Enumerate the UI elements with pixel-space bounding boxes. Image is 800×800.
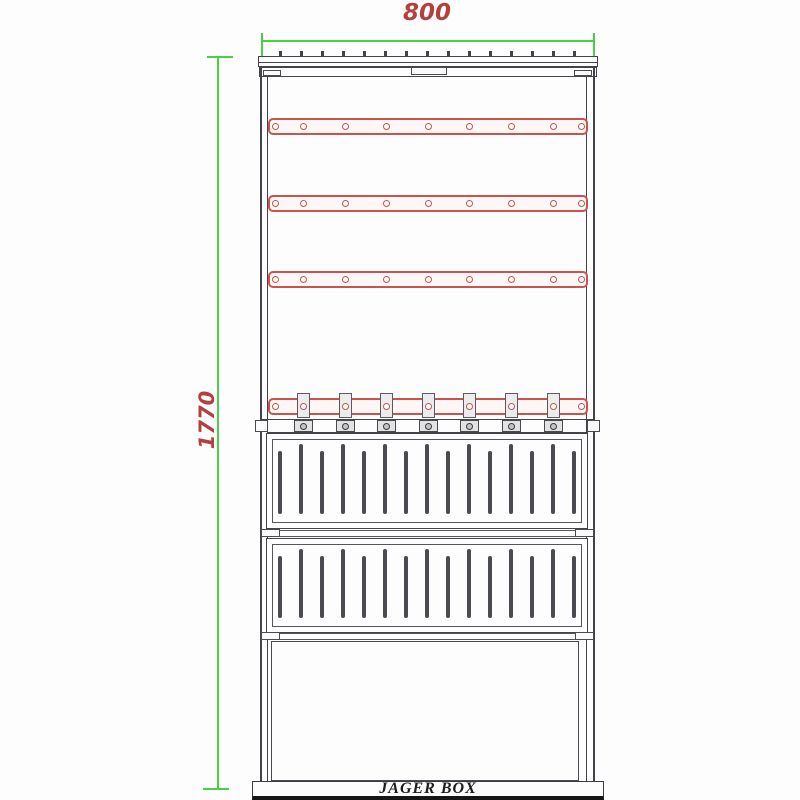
band-notch-right — [587, 420, 600, 432]
rail-hole — [550, 276, 557, 283]
louver-slot — [551, 549, 555, 618]
rail-hole — [300, 123, 307, 130]
rail-hole — [300, 276, 307, 283]
louver-slot — [572, 556, 576, 618]
clamp-foot-hole — [383, 423, 390, 430]
junction-tab-1-left — [261, 529, 280, 537]
roof-tab-tick — [489, 51, 492, 57]
rail-hole — [466, 276, 473, 283]
roof-tab-tick — [279, 51, 282, 57]
flange-tab-center — [411, 67, 447, 75]
roof-tab-tick — [468, 51, 471, 57]
rail-hole — [272, 123, 279, 130]
louver-slot — [530, 451, 534, 514]
height-dimension-end-tick-bottom — [203, 788, 229, 790]
cabinet-roof-inner-line — [259, 62, 597, 63]
roof-tab-tick — [573, 51, 576, 57]
cabinet-wall-left-outer — [260, 67, 262, 797]
louver-slot — [551, 444, 555, 514]
louver-slot — [425, 549, 429, 618]
louver-slot — [425, 444, 429, 514]
louver-slot — [572, 451, 576, 514]
rail-hole — [272, 276, 279, 283]
clamp-foot-hole — [300, 423, 307, 430]
clamp-hole — [300, 403, 307, 410]
junction-tab-2-left — [261, 632, 280, 640]
roof-tab-tick — [531, 51, 534, 57]
lower-door-panel — [271, 641, 579, 781]
clamp-foot-hole — [466, 423, 473, 430]
louver-slot — [467, 444, 471, 514]
clamp-hole — [383, 403, 390, 410]
roof-tab-tick — [321, 51, 324, 57]
louver-slot — [299, 549, 303, 618]
clamp-hole — [508, 403, 515, 410]
roof-tab-tick — [447, 51, 450, 57]
rail-hole — [466, 200, 473, 207]
rail-hole — [425, 276, 432, 283]
louver-slot — [341, 549, 345, 618]
roof-tab-tick — [300, 51, 303, 57]
junction-tab-1-right — [575, 529, 594, 537]
rail-hole — [272, 200, 279, 207]
rail-hole — [383, 200, 390, 207]
clamp-hole — [425, 403, 432, 410]
width-dimension-label: 800 — [385, 0, 469, 26]
louver-slot — [383, 444, 387, 514]
clamp-foot-hole — [550, 423, 557, 430]
rail-hole — [425, 200, 432, 207]
nameplate-bar: JAGER BOX — [252, 781, 604, 800]
clamp-hole — [550, 403, 557, 410]
roof-tab-tick — [552, 51, 555, 57]
rail-hole — [466, 123, 473, 130]
louver-slot — [509, 444, 513, 514]
louver-slot — [404, 556, 408, 618]
clamp-hole — [466, 403, 473, 410]
rail-hole — [578, 276, 585, 283]
louver-slot — [488, 451, 492, 514]
rail-hole — [508, 200, 515, 207]
louver-slot — [320, 451, 324, 514]
junction-band-2 — [268, 633, 588, 640]
junction-band-1 — [268, 530, 588, 537]
louver-slot — [383, 549, 387, 618]
width-dimension-end-tick-left — [261, 33, 263, 57]
louver-slot — [320, 556, 324, 618]
technical-drawing-canvas: 800 1770 JAGER BOX — [0, 0, 800, 800]
roof-tab-tick — [426, 51, 429, 57]
rail-hole — [383, 276, 390, 283]
roof-tab-tick — [384, 51, 387, 57]
louver-slot — [446, 451, 450, 514]
height-dimension-label: 1770 — [195, 385, 219, 455]
louver-slot — [467, 549, 471, 618]
rail-hole — [342, 276, 349, 283]
louver-slot — [362, 556, 366, 618]
louver-slot — [362, 451, 366, 514]
louver-slot — [278, 556, 282, 618]
width-dimension-end-tick-right — [593, 33, 595, 57]
rail-hole — [342, 200, 349, 207]
louver-slot — [488, 556, 492, 618]
rail-hole — [425, 123, 432, 130]
clamp-foot-hole — [425, 423, 432, 430]
cabinet-wall-right-outer — [593, 67, 595, 797]
clamp-hole — [342, 403, 349, 410]
louver-slot — [446, 556, 450, 618]
rail-hole — [550, 200, 557, 207]
louver-slot — [341, 444, 345, 514]
roof-tab-tick — [405, 51, 408, 57]
rail-hole — [383, 123, 390, 130]
roof-tab-tick — [363, 51, 366, 57]
rail-hole — [550, 123, 557, 130]
louver-slot — [278, 451, 282, 514]
louver-slot — [404, 451, 408, 514]
roof-tab-tick — [342, 51, 345, 57]
flange-tab-left — [263, 70, 281, 76]
rail-hole — [342, 123, 349, 130]
louver-slot — [299, 444, 303, 514]
rail-hole — [508, 276, 515, 283]
clamp-foot-hole — [508, 423, 515, 430]
rail-hole — [272, 403, 279, 410]
junction-tab-2-right — [575, 632, 594, 640]
roof-tab-tick — [510, 51, 513, 57]
flange-tab-right — [574, 70, 592, 76]
width-dimension-line — [262, 40, 594, 42]
rail-hole — [578, 200, 585, 207]
rail-hole — [508, 123, 515, 130]
rail-hole — [300, 200, 307, 207]
louver-slot — [530, 556, 534, 618]
rail-hole — [578, 403, 585, 410]
nameplate-text: JAGER BOX — [379, 780, 476, 798]
rail-hole — [578, 123, 585, 130]
louver-slot — [509, 549, 513, 618]
clamp-foot-hole — [342, 423, 349, 430]
height-dimension-end-tick-top — [207, 56, 233, 58]
band-notch-left — [255, 420, 268, 432]
